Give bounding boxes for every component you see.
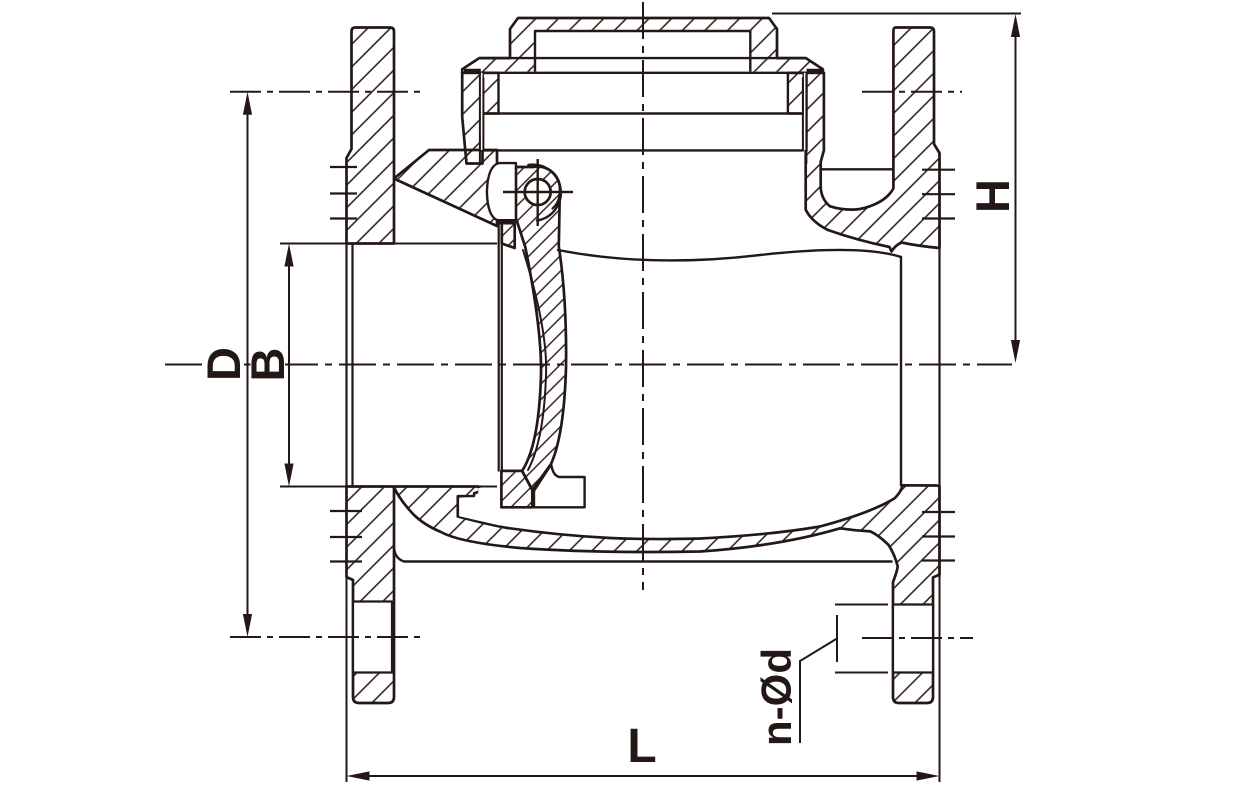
svg-text:L: L <box>627 720 656 773</box>
svg-text:n-Ød: n-Ød <box>753 648 800 746</box>
svg-text:H: H <box>966 179 1019 213</box>
svg-text:B: B <box>241 348 294 382</box>
